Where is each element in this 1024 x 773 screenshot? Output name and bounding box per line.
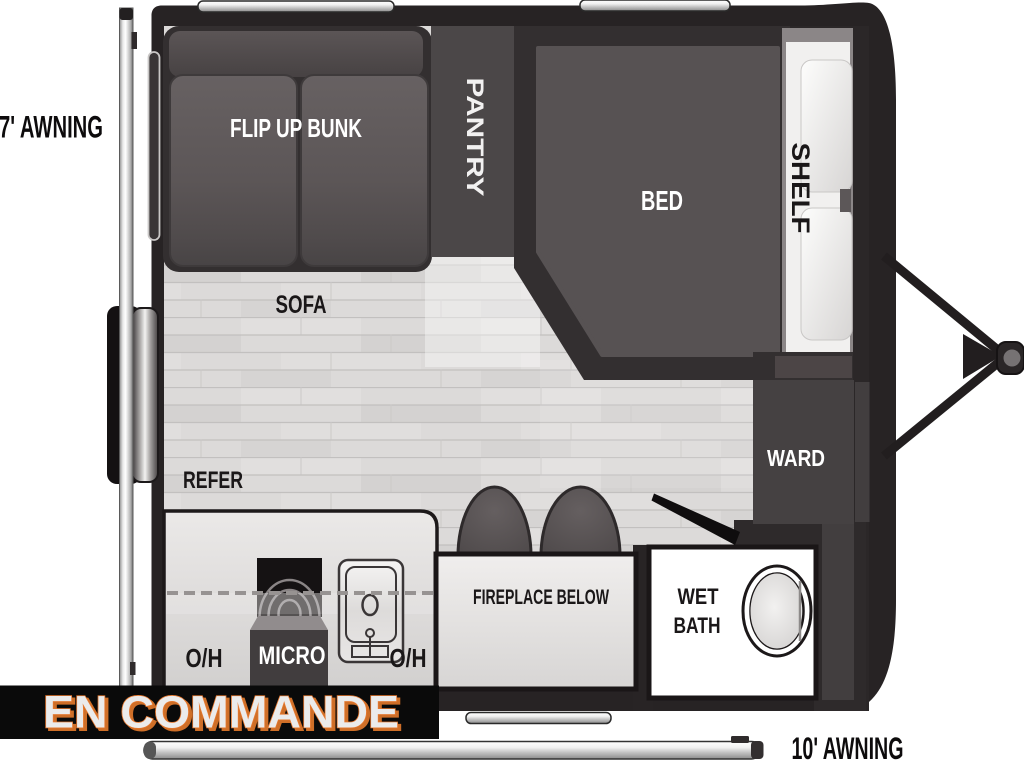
svg-text:FIREPLACE BELOW: FIREPLACE BELOW <box>473 585 609 609</box>
svg-text:O/H: O/H <box>186 643 223 673</box>
svg-text:BED: BED <box>641 185 683 216</box>
svg-text:REFER: REFER <box>183 467 243 494</box>
svg-text:7' AWNING: 7' AWNING <box>0 109 103 145</box>
svg-text:FLIP UP BUNK: FLIP UP BUNK <box>230 113 362 143</box>
svg-text:PANTRY: PANTRY <box>461 78 488 197</box>
svg-text:WET: WET <box>678 584 719 609</box>
svg-text:SHELF: SHELF <box>786 143 813 234</box>
svg-text:MICRO: MICRO <box>259 643 326 670</box>
svg-text:WARD: WARD <box>767 445 825 471</box>
svg-text:BATH: BATH <box>674 613 721 638</box>
svg-text:O/H: O/H <box>390 643 427 673</box>
svg-text:EN COMMANDE: EN COMMANDE <box>43 687 399 738</box>
svg-text:10' AWNING: 10' AWNING <box>792 730 904 766</box>
svg-text:SOFA: SOFA <box>276 292 327 319</box>
